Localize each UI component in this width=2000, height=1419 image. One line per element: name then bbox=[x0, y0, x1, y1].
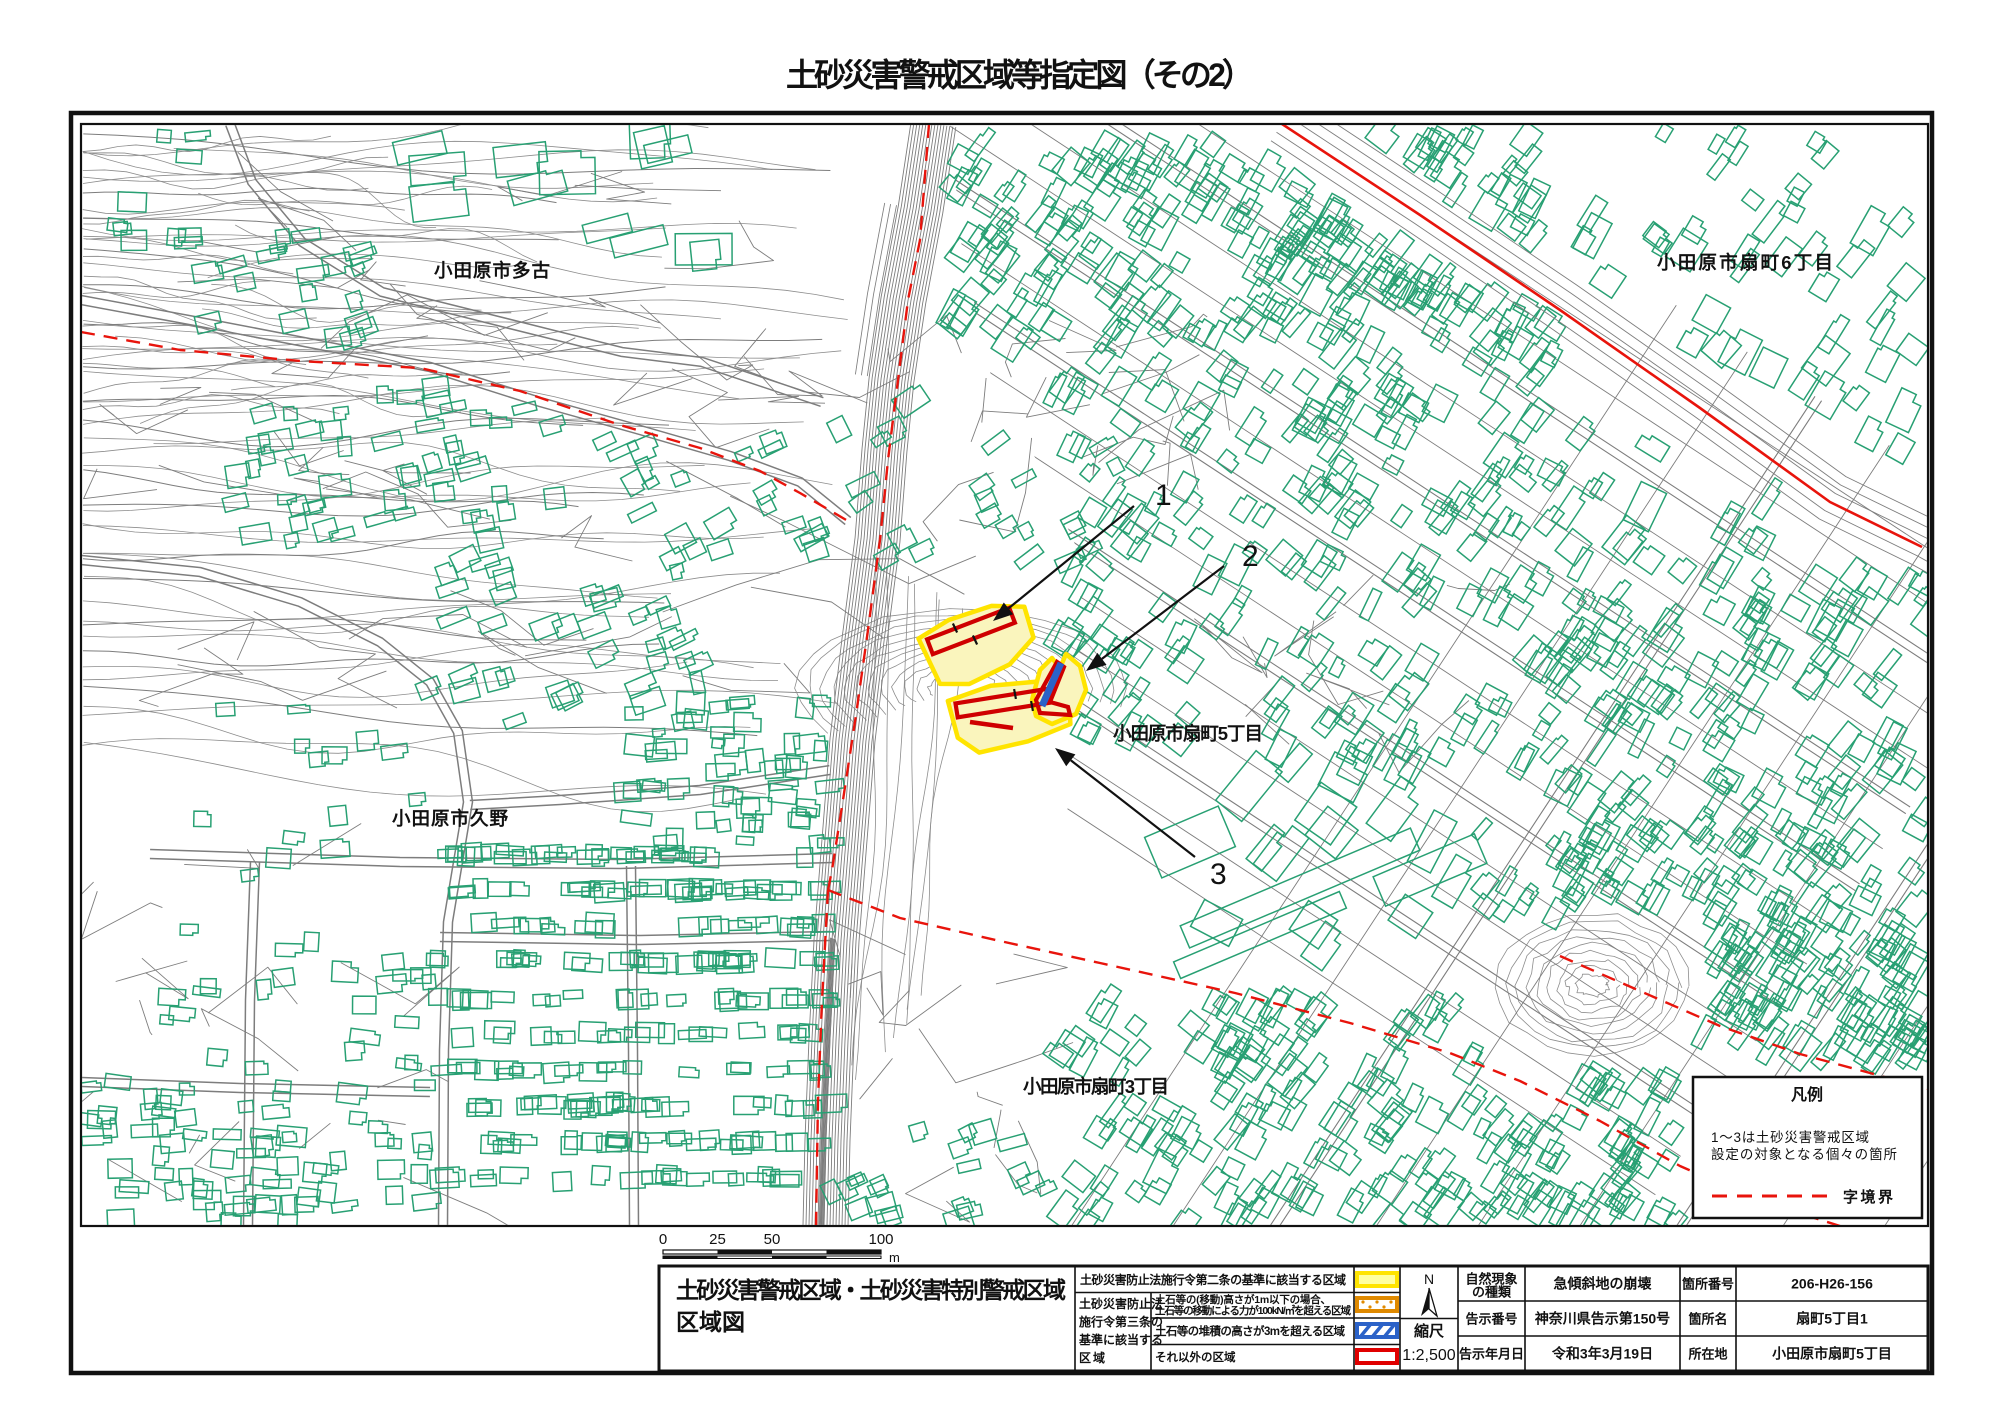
svg-text:凡例: 凡例 bbox=[1791, 1085, 1823, 1104]
svg-text:1〜3は土砂災害警戒区域: 1〜3は土砂災害警戒区域 bbox=[1711, 1130, 1869, 1145]
svg-text:土砂災害防止法施行令第二条の基準に該当する区域: 土砂災害防止法施行令第二条の基準に該当する区域 bbox=[1080, 1272, 1346, 1287]
svg-text:神奈川県告示第150号: 神奈川県告示第150号 bbox=[1535, 1311, 1670, 1327]
svg-text:土石等の堆積の高さが3mを超える区域: 土石等の堆積の高さが3mを超える区域 bbox=[1155, 1324, 1346, 1338]
svg-text:扇町5丁目1: 扇町5丁目1 bbox=[1796, 1311, 1868, 1327]
svg-text:m: m bbox=[889, 1250, 900, 1265]
svg-text:土石等の移動による力が100kN/㎡を超える区域: 土石等の移動による力が100kN/㎡を超える区域 bbox=[1155, 1304, 1352, 1317]
svg-text:0: 0 bbox=[659, 1231, 667, 1248]
svg-text:急傾斜地の崩壊: 急傾斜地の崩壊 bbox=[1554, 1276, 1653, 1292]
svg-text:令和3年3月19日: 令和3年3月19日 bbox=[1551, 1346, 1653, 1362]
svg-text:3: 3 bbox=[1210, 858, 1227, 891]
svg-text:所在地: 所在地 bbox=[1688, 1347, 1727, 1362]
svg-text:設定の対象となる個々の箇所: 設定の対象となる個々の箇所 bbox=[1711, 1146, 1897, 1162]
svg-text:206-H26-156: 206-H26-156 bbox=[1791, 1276, 1873, 1292]
svg-text:字境界: 字境界 bbox=[1843, 1188, 1893, 1206]
svg-text:小田原市久野: 小田原市久野 bbox=[392, 808, 508, 829]
svg-text:土砂災害警戒区域・土砂災害特別警戒区域: 土砂災害警戒区域・土砂災害特別警戒区域 bbox=[676, 1277, 1066, 1303]
svg-text:1:2,500: 1:2,500 bbox=[1402, 1347, 1455, 1364]
svg-text:の種類: の種類 bbox=[1472, 1285, 1512, 1300]
svg-text:小田原市扇町5丁目: 小田原市扇町5丁目 bbox=[1113, 723, 1263, 744]
svg-text:50: 50 bbox=[764, 1231, 781, 1248]
svg-text:1: 1 bbox=[1155, 479, 1172, 512]
svg-text:土砂災害防止法: 土砂災害防止法 bbox=[1079, 1296, 1163, 1311]
svg-text:100: 100 bbox=[868, 1231, 893, 1248]
svg-text:箇所番号: 箇所番号 bbox=[1682, 1277, 1734, 1292]
svg-text:基準に該当する: 基準に該当する bbox=[1078, 1332, 1163, 1347]
svg-text:告示番号: 告示番号 bbox=[1465, 1312, 1517, 1327]
svg-text:区域: 区域 bbox=[1079, 1350, 1105, 1365]
svg-text:告示年月日: 告示年月日 bbox=[1459, 1347, 1524, 1362]
svg-text:縮尺: 縮尺 bbox=[1414, 1322, 1444, 1340]
svg-text:小田原市扇町3丁目: 小田原市扇町3丁目 bbox=[1023, 1076, 1169, 1097]
svg-text:小田原市扇町5丁目: 小田原市扇町5丁目 bbox=[1772, 1346, 1892, 1362]
svg-text:小田原市多古: 小田原市多古 bbox=[434, 260, 550, 281]
svg-text:25: 25 bbox=[709, 1231, 726, 1248]
svg-text:箇所名: 箇所名 bbox=[1688, 1312, 1727, 1327]
svg-text:土砂災害警戒区域等指定図（その2）: 土砂災害警戒区域等指定図（その2） bbox=[786, 57, 1254, 93]
svg-text:それ以外の区域: それ以外の区域 bbox=[1155, 1350, 1236, 1364]
svg-text:N: N bbox=[1424, 1271, 1434, 1287]
svg-text:区域図: 区域図 bbox=[676, 1309, 745, 1335]
svg-text:施行令第三条の: 施行令第三条の bbox=[1079, 1314, 1163, 1329]
svg-text:小田原市扇町6丁目: 小田原市扇町6丁目 bbox=[1657, 252, 1833, 273]
svg-text:2: 2 bbox=[1242, 540, 1259, 573]
